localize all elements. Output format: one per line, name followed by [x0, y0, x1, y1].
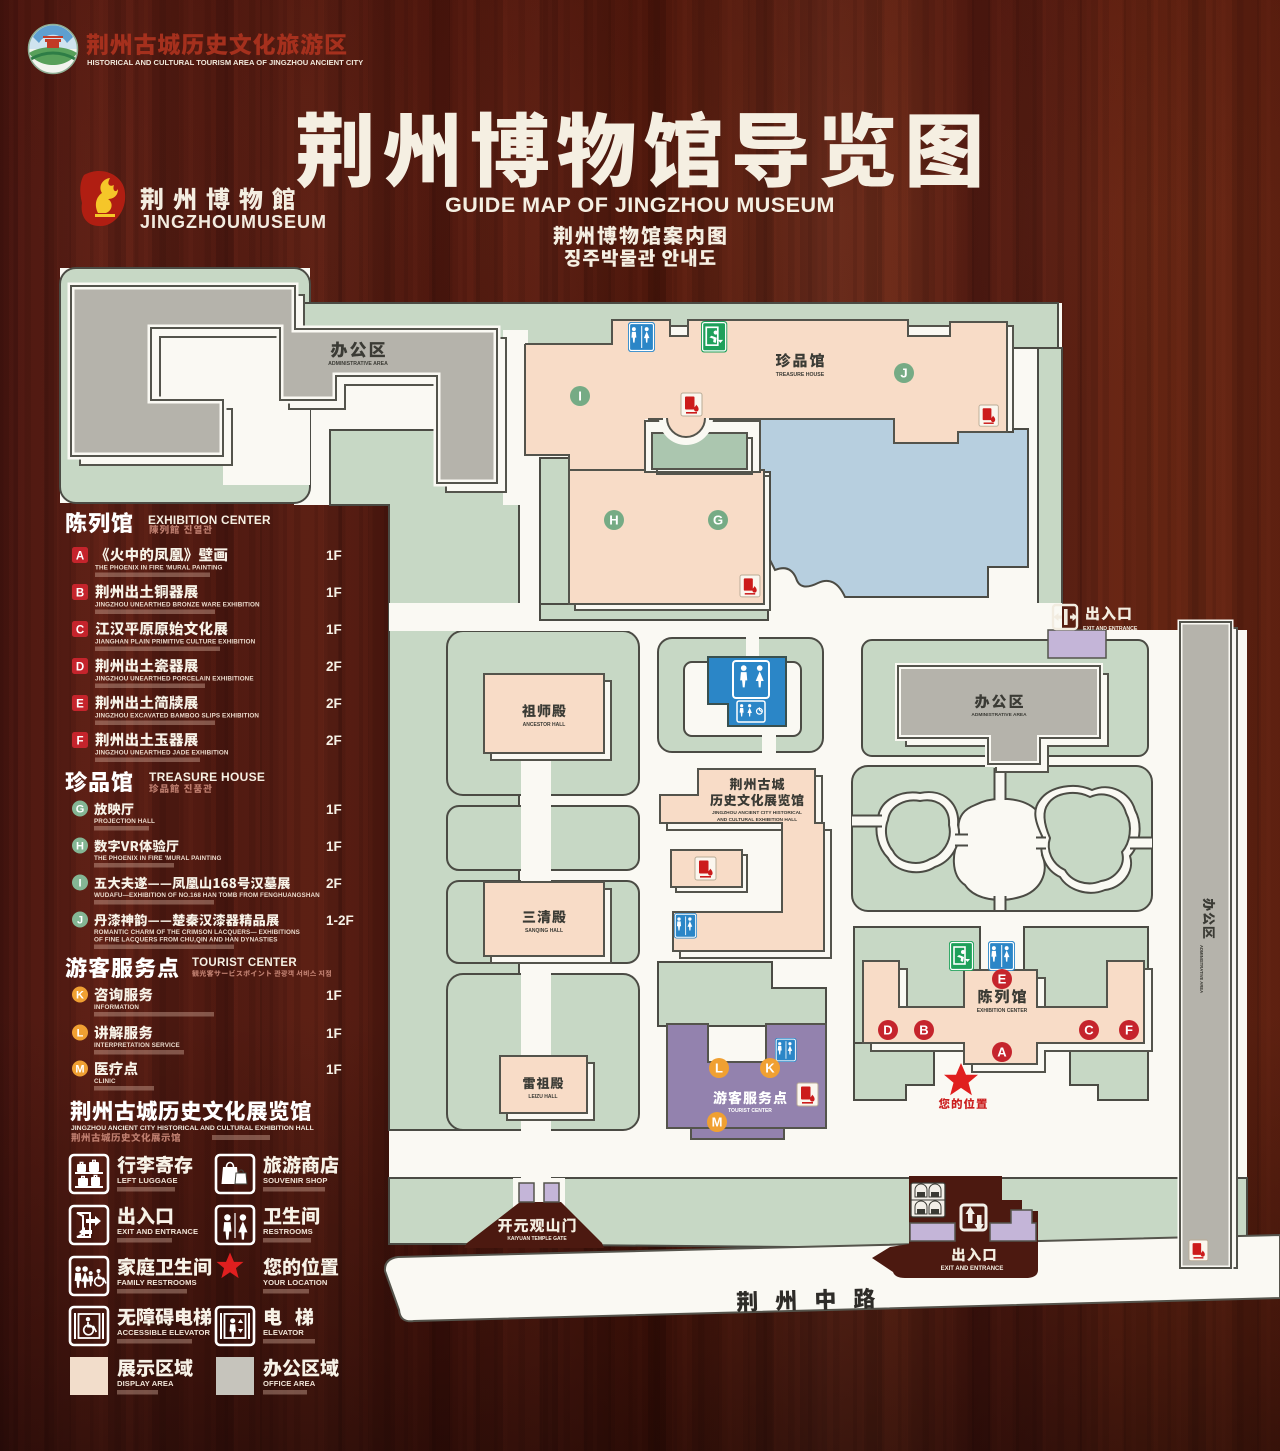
svg-text:M: M [712, 1115, 723, 1130]
svg-text:TREASURE HOUSE: TREASURE HOUSE [149, 770, 265, 784]
svg-text:1-2F: 1-2F [326, 913, 354, 928]
svg-text:ADMINISTRATIVE AREA: ADMINISTRATIVE AREA [1199, 945, 1204, 993]
svg-text:HISTORICAL AND CULTURAL TOURIS: HISTORICAL AND CULTURAL TOURISM AREA OF … [87, 58, 363, 67]
svg-text:JINGZHOU UNEARTHED JADE EXHIBI: JINGZHOU UNEARTHED JADE EXHIBITION [95, 750, 229, 757]
svg-text:B: B [919, 1023, 928, 1038]
svg-text:C: C [76, 625, 84, 637]
svg-text:GUIDE MAP OF JINGZHOU MUSEUM: GUIDE MAP OF JINGZHOU MUSEUM [445, 193, 835, 217]
svg-text:1F: 1F [326, 1026, 342, 1041]
svg-text:SOUVENIR SHOP: SOUVENIR SHOP [263, 1176, 328, 1185]
svg-text:EXIT AND ENTRANCE: EXIT AND ENTRANCE [1083, 626, 1138, 632]
svg-text:TREASURE HOUSE: TREASURE HOUSE [776, 372, 825, 378]
svg-text:JINGZHOU UNEARTHED PORCELAIN E: JINGZHOU UNEARTHED PORCELAIN EXHIBITIONE [95, 676, 254, 683]
svg-text:SANQING HALL: SANQING HALL [525, 928, 563, 934]
svg-text:1F: 1F [326, 839, 342, 854]
svg-text:LEFT LUGGAGE: LEFT LUGGAGE [117, 1176, 178, 1185]
svg-text:YOUR LOCATION: YOUR LOCATION [263, 1278, 327, 1287]
svg-text:J: J [900, 366, 907, 381]
svg-text:KAIYUAN TEMPLE GATE: KAIYUAN TEMPLE GATE [507, 1236, 567, 1242]
svg-text:INFORMATION: INFORMATION [94, 1004, 139, 1011]
svg-text:JIANGHAN PLAIN PRIMITIVE CULTU: JIANGHAN PLAIN PRIMITIVE CULTURE EXHIBIT… [95, 639, 256, 646]
svg-text:K: K [765, 1061, 775, 1076]
svg-text:JINGZHOU UNEARTHED BRONZE WARE: JINGZHOU UNEARTHED BRONZE WARE EXHIBITIO… [95, 602, 260, 609]
svg-text:D: D [76, 662, 84, 674]
svg-text:1F: 1F [326, 1062, 342, 1077]
svg-text:AND CULTURAL EXHIBITION HALL: AND CULTURAL EXHIBITION HALL [717, 817, 797, 823]
svg-text:1F: 1F [326, 802, 342, 817]
svg-text:I: I [78, 878, 81, 890]
svg-text:L: L [715, 1061, 723, 1076]
svg-text:CLINIC: CLINIC [94, 1078, 116, 1085]
svg-text:INTERPRETATION SERVICE: INTERPRETATION SERVICE [94, 1042, 180, 1049]
svg-text:B: B [76, 588, 84, 600]
svg-text:L: L [77, 1028, 84, 1040]
svg-text:F: F [76, 736, 83, 748]
svg-text:THE PHOENIX IN FIRE 'MURAL PAI: THE PHOENIX IN FIRE 'MURAL PAINTING [95, 565, 223, 572]
svg-text:2F: 2F [326, 733, 342, 748]
svg-text:D: D [883, 1023, 892, 1038]
svg-text:ADMINISTRATIVE AREA: ADMINISTRATIVE AREA [971, 712, 1027, 718]
svg-text:EXIT AND ENTRANCE: EXIT AND ENTRANCE [117, 1227, 198, 1236]
svg-text:PROJECTION HALL: PROJECTION HALL [94, 818, 155, 825]
svg-text:H: H [609, 513, 618, 528]
svg-text:F: F [1125, 1023, 1133, 1038]
svg-text:G: G [713, 513, 723, 528]
svg-text:1F: 1F [326, 548, 342, 563]
svg-text:OFFICE AREA: OFFICE AREA [263, 1379, 316, 1388]
svg-text:WUDAFU—EXHIBITION OF NO.168 HA: WUDAFU—EXHIBITION OF NO.168 HAN TOMB FRO… [94, 892, 320, 899]
svg-text:J: J [77, 915, 83, 927]
svg-text:ADMINISTRATIVE AREA: ADMINISTRATIVE AREA [328, 361, 388, 367]
svg-text:1F: 1F [326, 585, 342, 600]
svg-text:RESTROOMS: RESTROOMS [263, 1227, 313, 1236]
svg-text:JINGZHOU ANCIENT CITY HISTORIC: JINGZHOU ANCIENT CITY HISTORICAL AND CUL… [71, 1125, 314, 1132]
svg-text:G: G [76, 804, 85, 816]
svg-text:JINGZHOU ANCIENT CITY HISTORIC: JINGZHOU ANCIENT CITY HISTORICAL [712, 810, 802, 816]
svg-text:K: K [76, 990, 84, 1002]
svg-text:LEIZU HALL: LEIZU HALL [528, 1094, 557, 1100]
svg-text:1F: 1F [326, 988, 342, 1003]
svg-text:2F: 2F [326, 696, 342, 711]
svg-text:I: I [578, 389, 582, 404]
svg-text:OF FINE LACQUERS FROM CHU,QIN: OF FINE LACQUERS FROM CHU,QIN AND HAN DY… [94, 937, 278, 944]
svg-text:EXHIBITION CENTER: EXHIBITION CENTER [977, 1008, 1028, 1014]
svg-text:FAMILY RESTROOMS: FAMILY RESTROOMS [117, 1278, 197, 1287]
svg-text:A: A [997, 1045, 1007, 1060]
svg-text:TOURIST CENTER: TOURIST CENTER [192, 957, 297, 969]
svg-text:M: M [75, 1064, 84, 1076]
svg-text:E: E [998, 972, 1007, 987]
svg-text:H: H [76, 841, 84, 853]
svg-text:A: A [76, 551, 84, 563]
svg-text:2F: 2F [326, 659, 342, 674]
svg-text:TOURIST CENTER: TOURIST CENTER [728, 1108, 772, 1114]
svg-text:ROMANTIC CHARM OF THE CRIMSON: ROMANTIC CHARM OF THE CRIMSON LACQUERS— … [94, 929, 300, 936]
svg-text:DISPLAY AREA: DISPLAY AREA [117, 1379, 174, 1388]
svg-text:C: C [1084, 1023, 1094, 1038]
svg-text:JINGZHOU EXCAVATED BAMBOO SLIP: JINGZHOU EXCAVATED BAMBOO SLIPS EXHIBITI… [95, 713, 259, 720]
svg-text:THE PHOENIX IN FIRE 'MURAL PAI: THE PHOENIX IN FIRE 'MURAL PAINTING [94, 855, 222, 862]
svg-text:1F: 1F [326, 622, 342, 637]
svg-text:EXIT AND ENTRANCE: EXIT AND ENTRANCE [941, 1266, 1004, 1272]
svg-text:ANCESTOR HALL: ANCESTOR HALL [523, 722, 566, 728]
svg-text:EXHIBITION CENTER: EXHIBITION CENTER [148, 513, 271, 527]
svg-text:JINGZHOUMUSEUM: JINGZHOUMUSEUM [140, 212, 327, 232]
svg-text:2F: 2F [326, 876, 342, 891]
svg-text:ELEVATOR: ELEVATOR [263, 1328, 304, 1337]
svg-text:ACCESSIBLE ELEVATOR: ACCESSIBLE ELEVATOR [117, 1328, 210, 1337]
svg-text:E: E [76, 699, 84, 711]
